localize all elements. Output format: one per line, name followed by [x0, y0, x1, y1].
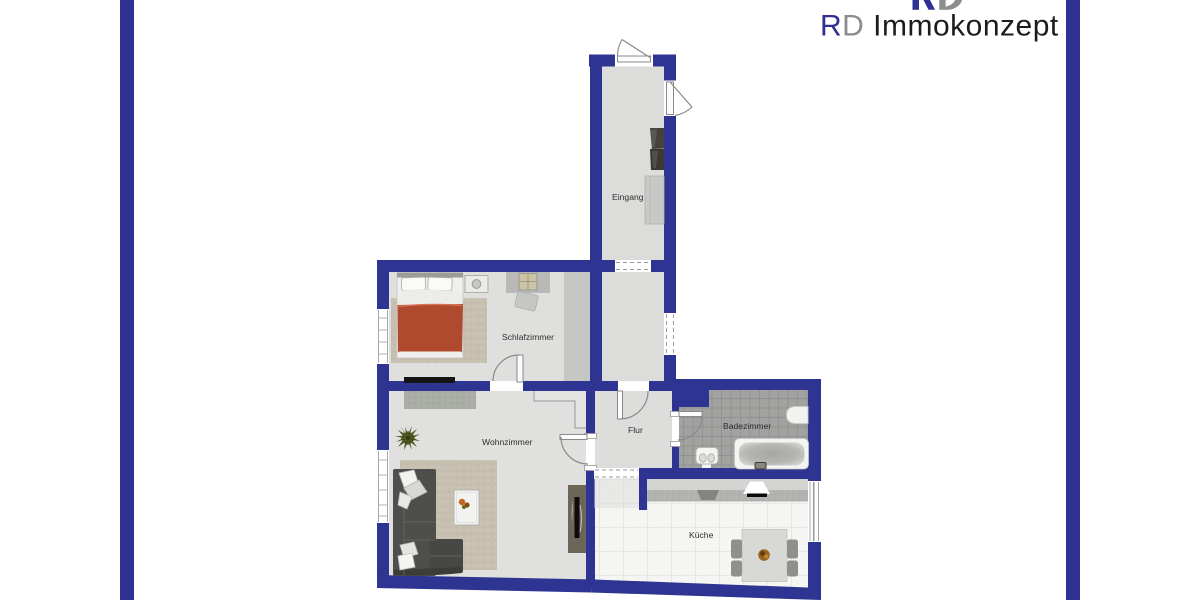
svg-text:Küche: Küche	[689, 530, 714, 540]
svg-text:Wohnzimmer: Wohnzimmer	[482, 437, 533, 447]
svg-text:RD Immokonzept: RD Immokonzept	[820, 10, 1059, 43]
svg-text:Badezimmer: Badezimmer	[723, 421, 771, 431]
svg-text:Flur: Flur	[628, 425, 643, 435]
svg-text:Schlafzimmer: Schlafzimmer	[502, 332, 554, 342]
svg-text:Eingang: Eingang	[612, 192, 644, 202]
